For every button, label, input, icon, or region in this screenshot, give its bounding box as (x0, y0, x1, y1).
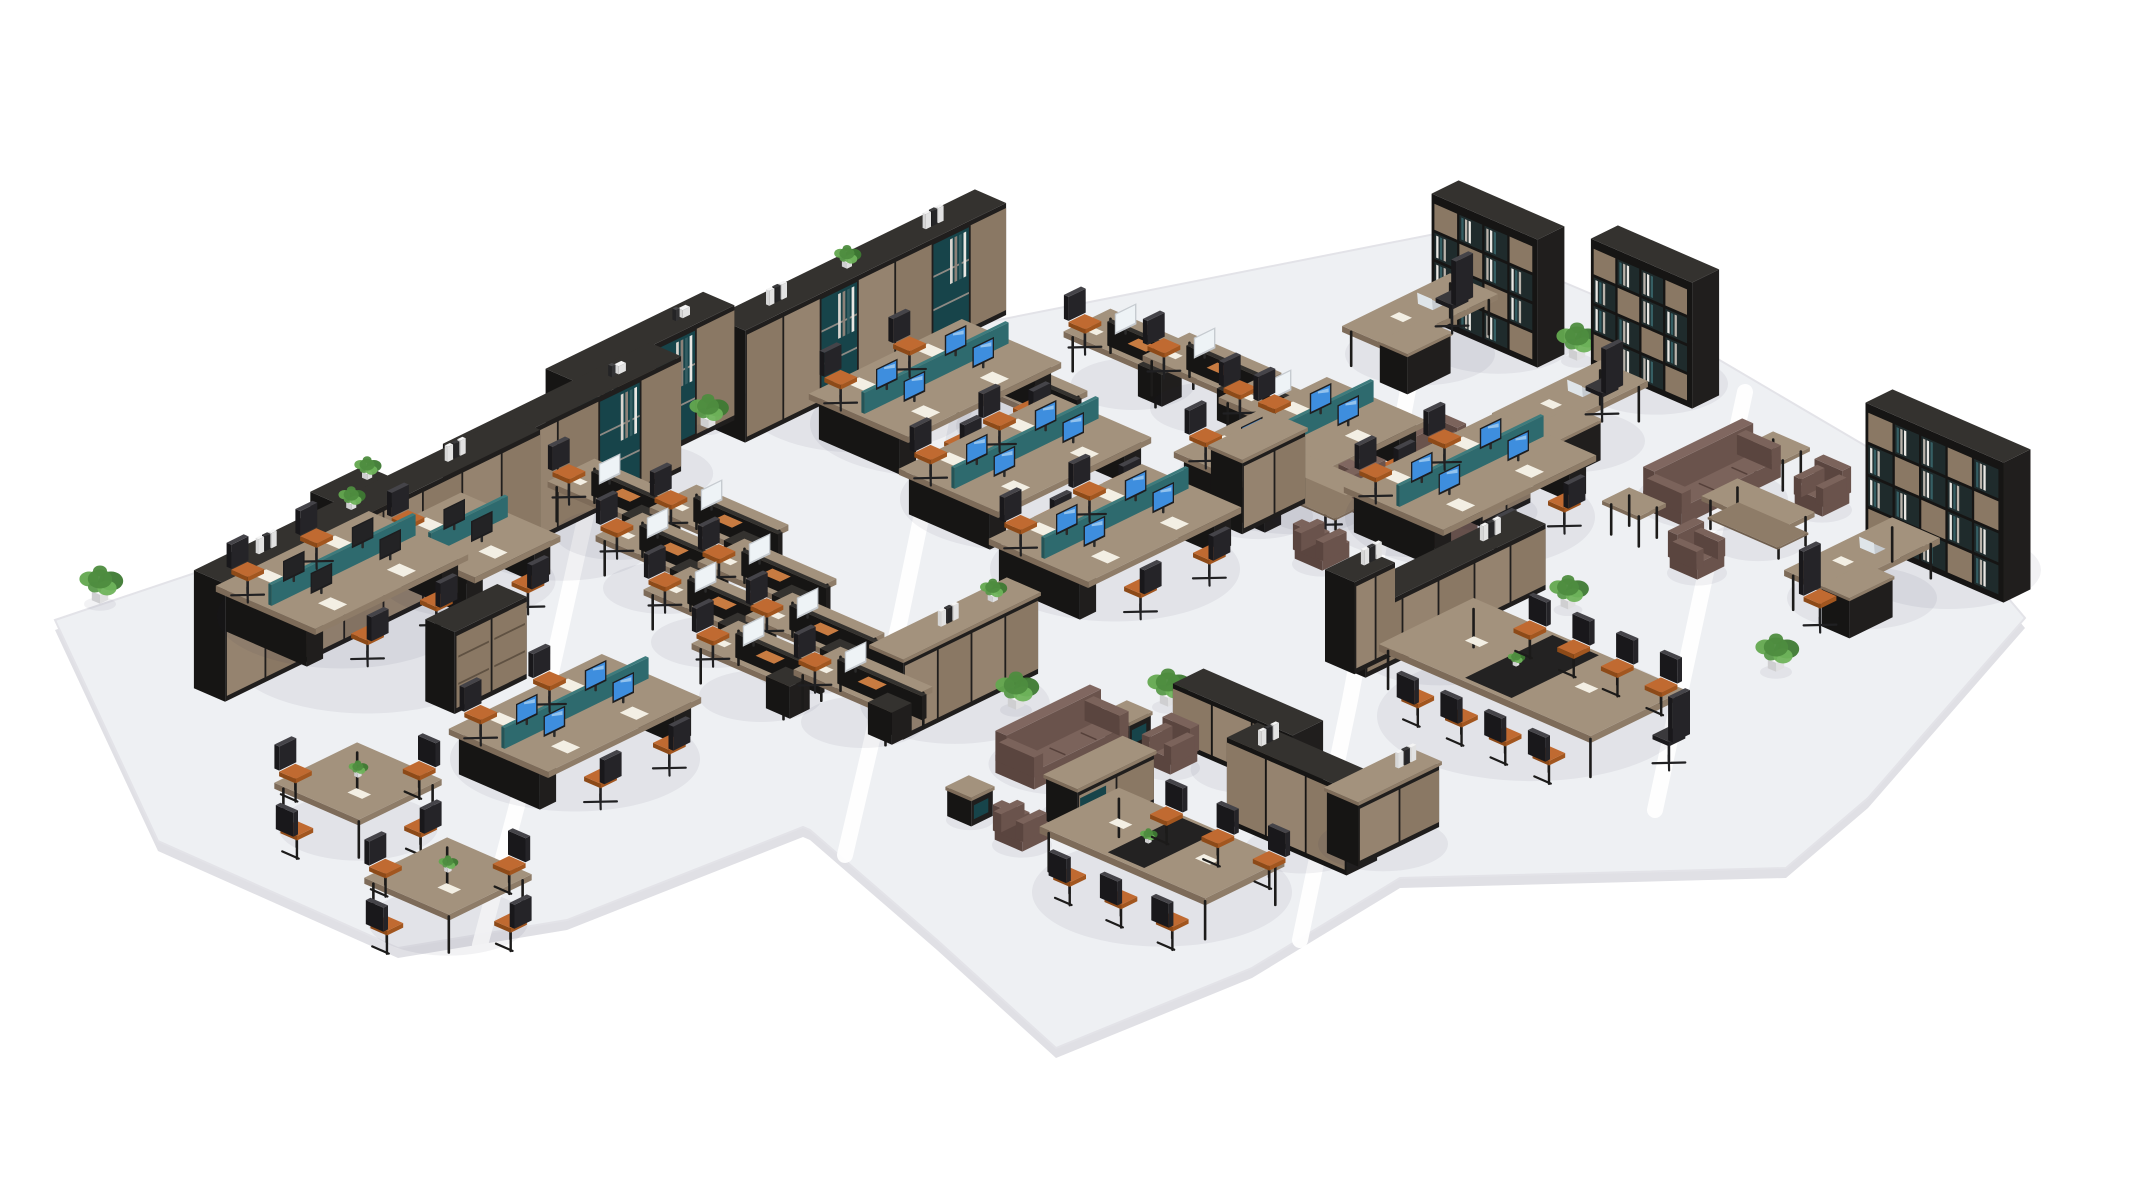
isometric-office-scene (0, 0, 2137, 1200)
office-floorplan-render (0, 0, 2137, 1200)
side-cube-63 (945, 775, 994, 830)
